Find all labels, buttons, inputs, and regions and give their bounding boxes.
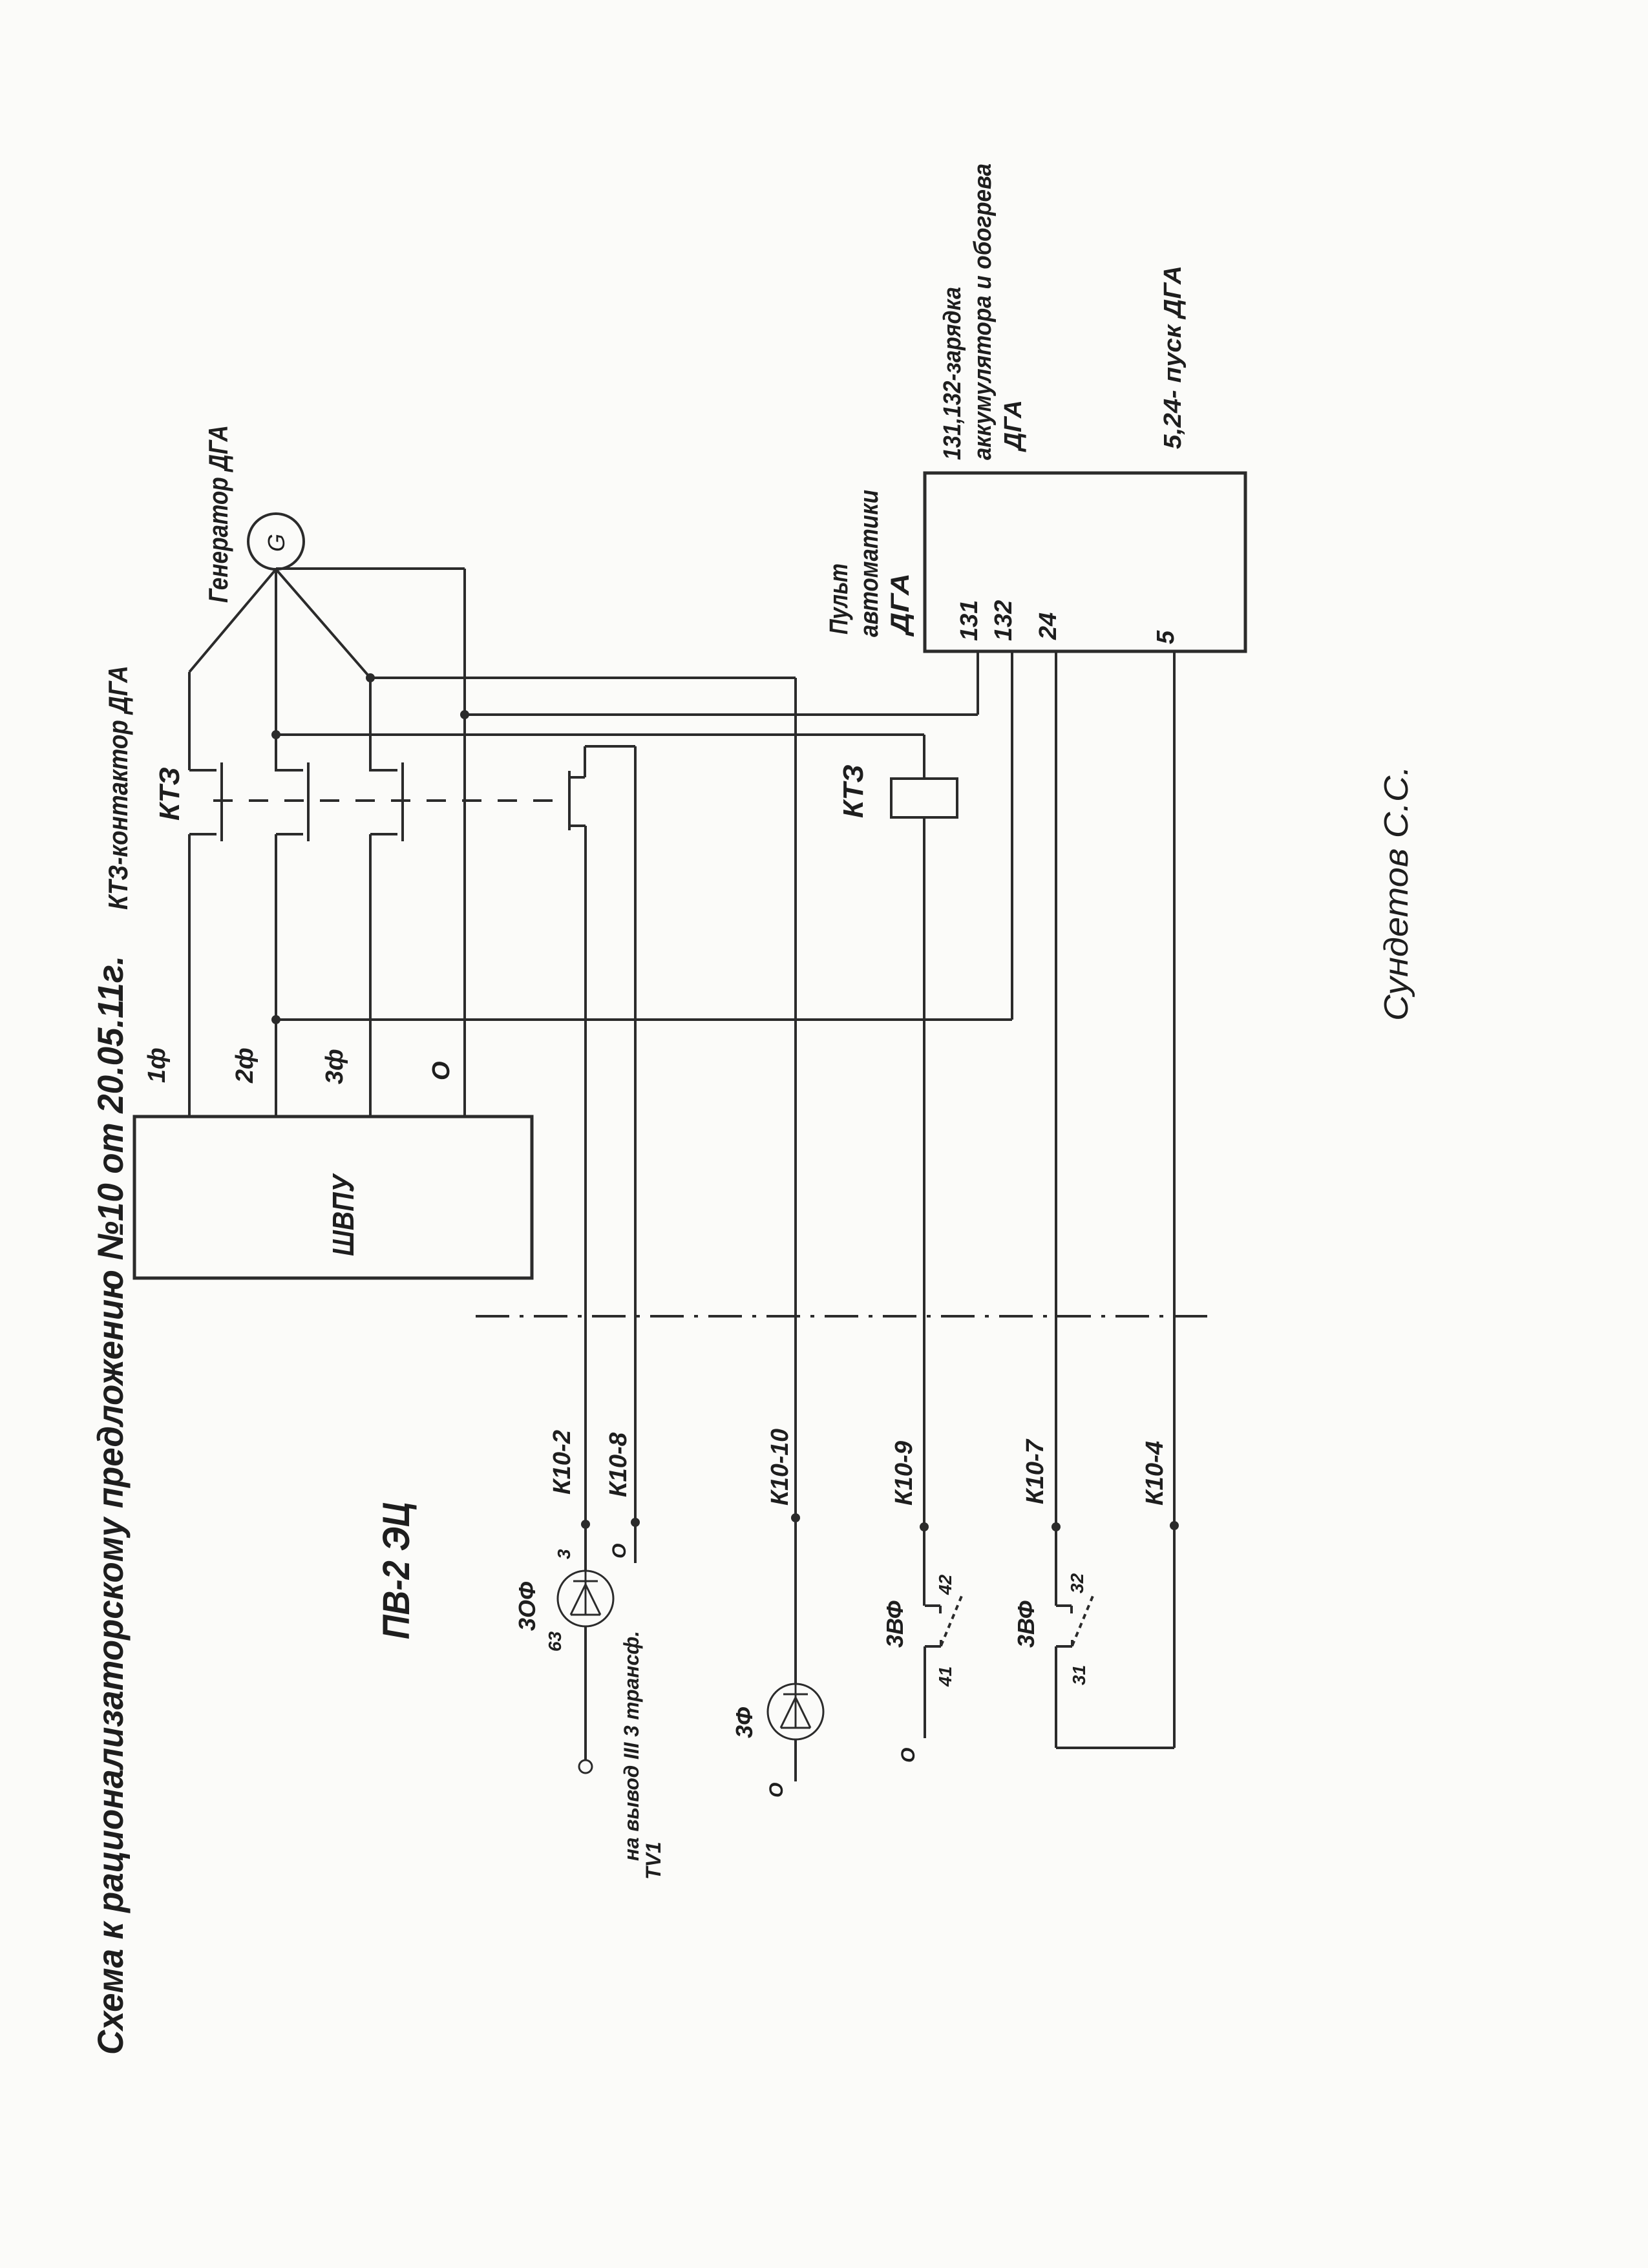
- svg-text:К10-7: К10-7: [1022, 1438, 1049, 1504]
- svg-text:24: 24: [1035, 613, 1062, 640]
- svg-text:63: 63: [545, 1631, 565, 1652]
- svg-text:аккумулятора и обогрева: аккумулятора и обогрева: [969, 163, 997, 460]
- svg-text:К10-10: К10-10: [766, 1429, 794, 1506]
- svg-text:ДГА: ДГА: [886, 573, 914, 637]
- svg-text:Схема к рационализаторскому пр: Схема к рационализаторскому предложению …: [90, 956, 131, 2055]
- svg-text:КТЗ: КТЗ: [154, 767, 185, 821]
- svg-text:Пульт: Пульт: [825, 563, 853, 635]
- svg-text:К10-8: К10-8: [605, 1432, 632, 1497]
- svg-text:TV1: TV1: [642, 1842, 665, 1880]
- svg-text:К10-2: К10-2: [549, 1430, 576, 1495]
- svg-text:32: 32: [1067, 1573, 1087, 1593]
- svg-text:5: 5: [1152, 630, 1179, 644]
- svg-text:КТЗ-контактор ДГА: КТЗ-контактор ДГА: [103, 666, 133, 910]
- svg-text:3Ф: 3Ф: [731, 1707, 757, 1738]
- svg-text:3ф: 3ф: [321, 1049, 348, 1084]
- svg-text:К10-4: К10-4: [1141, 1441, 1168, 1506]
- svg-text:41: 41: [935, 1666, 955, 1687]
- svg-text:132: 132: [990, 600, 1017, 641]
- svg-text:42: 42: [935, 1574, 955, 1595]
- svg-text:ШВПУ: ШВПУ: [326, 1173, 360, 1256]
- svg-text:ПВ-2 ЭЦ: ПВ-2 ЭЦ: [375, 1502, 417, 1639]
- svg-text:О: О: [898, 1748, 919, 1763]
- svg-text:131: 131: [956, 600, 983, 641]
- svg-text:3: 3: [554, 1549, 574, 1559]
- svg-text:3ВФ: 3ВФ: [882, 1601, 908, 1648]
- svg-text:5,24- пуск ДГА: 5,24- пуск ДГА: [1159, 266, 1187, 449]
- svg-text:О: О: [428, 1061, 455, 1080]
- svg-text:G: G: [263, 534, 290, 552]
- svg-text:автоматики: автоматики: [855, 490, 883, 637]
- svg-text:К10-9: К10-9: [891, 1441, 918, 1506]
- svg-text:КТЗ: КТЗ: [838, 764, 869, 818]
- svg-text:1ф: 1ф: [143, 1047, 171, 1083]
- svg-text:Генератор ДГА: Генератор ДГА: [203, 425, 233, 603]
- svg-text:31: 31: [1069, 1665, 1089, 1685]
- svg-text:на вывод III 3 трансф.: на вывод III 3 трансф.: [620, 1631, 643, 1861]
- svg-text:ДГА: ДГА: [1000, 400, 1027, 452]
- svg-text:О: О: [766, 1783, 787, 1798]
- svg-text:О: О: [609, 1544, 630, 1559]
- svg-text:Сундетов С.С.: Сундетов С.С.: [1378, 766, 1415, 1021]
- svg-text:131,132-зарядка: 131,132-зарядка: [939, 287, 966, 460]
- svg-text:3ОФ: 3ОФ: [514, 1582, 540, 1631]
- svg-text:3ВФ: 3ВФ: [1013, 1601, 1039, 1648]
- svg-text:2ф: 2ф: [231, 1047, 259, 1084]
